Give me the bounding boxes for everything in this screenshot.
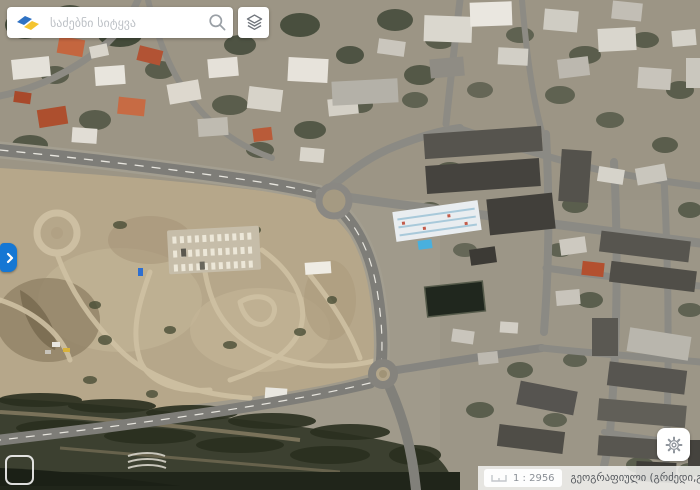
- coordinate-system-label: გეოგრაფიული (გრძედი,განედი): [571, 472, 700, 484]
- search-button[interactable]: [208, 13, 227, 32]
- layers-button[interactable]: [238, 7, 269, 38]
- map-app-window: 1 : 2956 გეოგრაფიული (გრძედი,განედი): [0, 0, 700, 490]
- sidebar-expand-toggle[interactable]: [0, 243, 17, 272]
- search-input[interactable]: [48, 15, 200, 31]
- search-icon: [208, 13, 227, 32]
- overview-map-toggle[interactable]: [5, 455, 34, 485]
- layers-icon: [244, 12, 265, 33]
- app-logo-icon: [16, 14, 40, 31]
- settings-button[interactable]: [657, 428, 690, 461]
- coordinate-system-selector[interactable]: გეოგრაფიული (გრძედი,განედი): [571, 472, 700, 484]
- satellite-map-canvas[interactable]: [0, 0, 700, 490]
- search-bar: [7, 7, 233, 38]
- scale-indicator: 1 : 2956: [484, 469, 562, 487]
- chevron-right-icon: [6, 252, 14, 264]
- scale-value: 1 : 2956: [513, 473, 555, 484]
- map-status-bar: 1 : 2956 გეოგრაფიული (გრძედი,განედი): [478, 466, 700, 490]
- gear-icon: [664, 435, 684, 455]
- scale-bar-icon: [491, 473, 507, 483]
